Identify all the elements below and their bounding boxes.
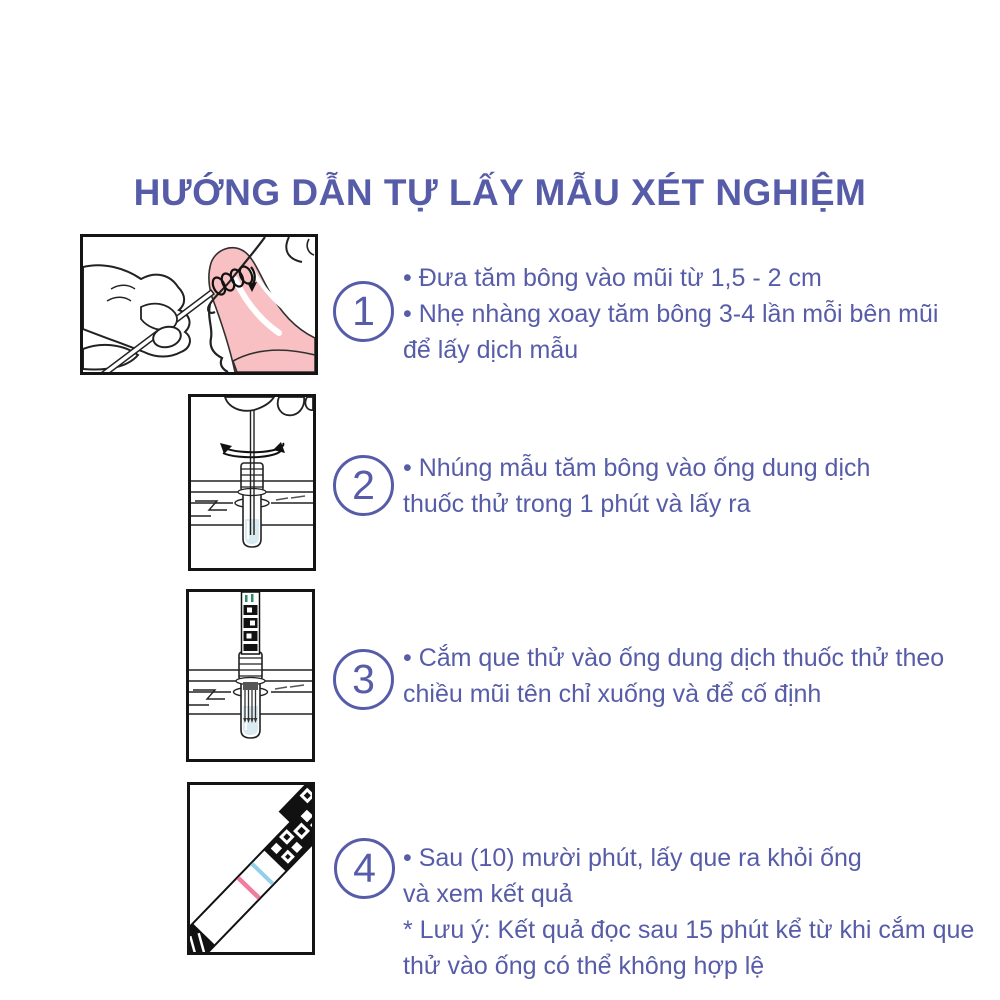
step3-strip-in-tube-figure: [186, 589, 315, 762]
instruction-line: thử vào ống có thể không hợp lệ: [403, 948, 974, 984]
step1-nasal-swab-figure: [80, 234, 318, 375]
nasal-swab-illustration: [83, 237, 315, 372]
nasal-cavity: [209, 248, 315, 372]
test-strip-in-tube-illustration: [189, 592, 312, 759]
diagonal-test-strip: [190, 785, 312, 952]
step1-instructions: • Đưa tăm bông vào mũi từ 1,5 - 2 cm • N…: [403, 260, 938, 368]
tube-cap-ribs: [238, 463, 266, 496]
step4-number-badge: 4: [334, 838, 395, 899]
step-number: 1: [352, 288, 375, 335]
step3-instructions: • Cắm que thử vào ống dung dịch thuốc th…: [403, 640, 944, 712]
instruction-line: * Lưu ý: Kết quả đọc sau 15 phút kể từ k…: [403, 912, 974, 948]
instruction-line: chiều mũi tên chỉ xuống và để cố định: [403, 676, 944, 712]
step3-number-badge: 3: [333, 649, 394, 710]
instruction-sheet: HƯỚNG DẪN TỰ LẤY MẪU XÉT NGHIỆM: [0, 0, 1000, 1000]
step2-swab-in-tube-figure: [188, 394, 316, 571]
instruction-line: • Đưa tăm bông vào mũi từ 1,5 - 2 cm: [403, 260, 938, 296]
step2-number-badge: 2: [333, 455, 394, 516]
instruction-line: • Cắm que thử vào ống dung dịch thuốc th…: [403, 640, 944, 676]
instruction-line: để lấy dịch mẫu: [403, 332, 938, 368]
step1-number-badge: 1: [333, 281, 394, 342]
rotation-arrows: [220, 442, 285, 457]
holding-fingers: [225, 397, 313, 415]
instruction-line: thuốc thử trong 1 phút và lấy ra: [403, 486, 870, 522]
step2-instructions: • Nhúng mẫu tăm bông vào ống dung dịch t…: [403, 450, 870, 522]
step-number: 2: [352, 462, 375, 509]
instruction-line: • Sau (10) mười phút, lấy que ra khỏi ốn…: [403, 840, 974, 876]
step-number: 4: [353, 845, 376, 892]
step4-result-strip-figure: [187, 782, 315, 955]
page-title: HƯỚNG DẪN TỰ LẤY MẪU XÉT NGHIỆM: [0, 172, 1000, 214]
result-strip-illustration: [190, 785, 312, 952]
instruction-line: và xem kết quả: [403, 876, 974, 912]
holder-label-marks: [276, 496, 305, 500]
instruction-line: • Nhúng mẫu tăm bông vào ống dung dịch: [403, 450, 870, 486]
swab-in-tube-illustration: [191, 397, 313, 568]
instruction-line: • Nhẹ nhàng xoay tăm bông 3-4 lần mỗi bê…: [403, 296, 938, 332]
step-number: 3: [352, 656, 375, 703]
tube-cap-ribs: [236, 652, 265, 685]
step4-instructions: • Sau (10) mười phút, lấy que ra khỏi ốn…: [403, 840, 974, 984]
holder-label-marks: [275, 685, 304, 689]
